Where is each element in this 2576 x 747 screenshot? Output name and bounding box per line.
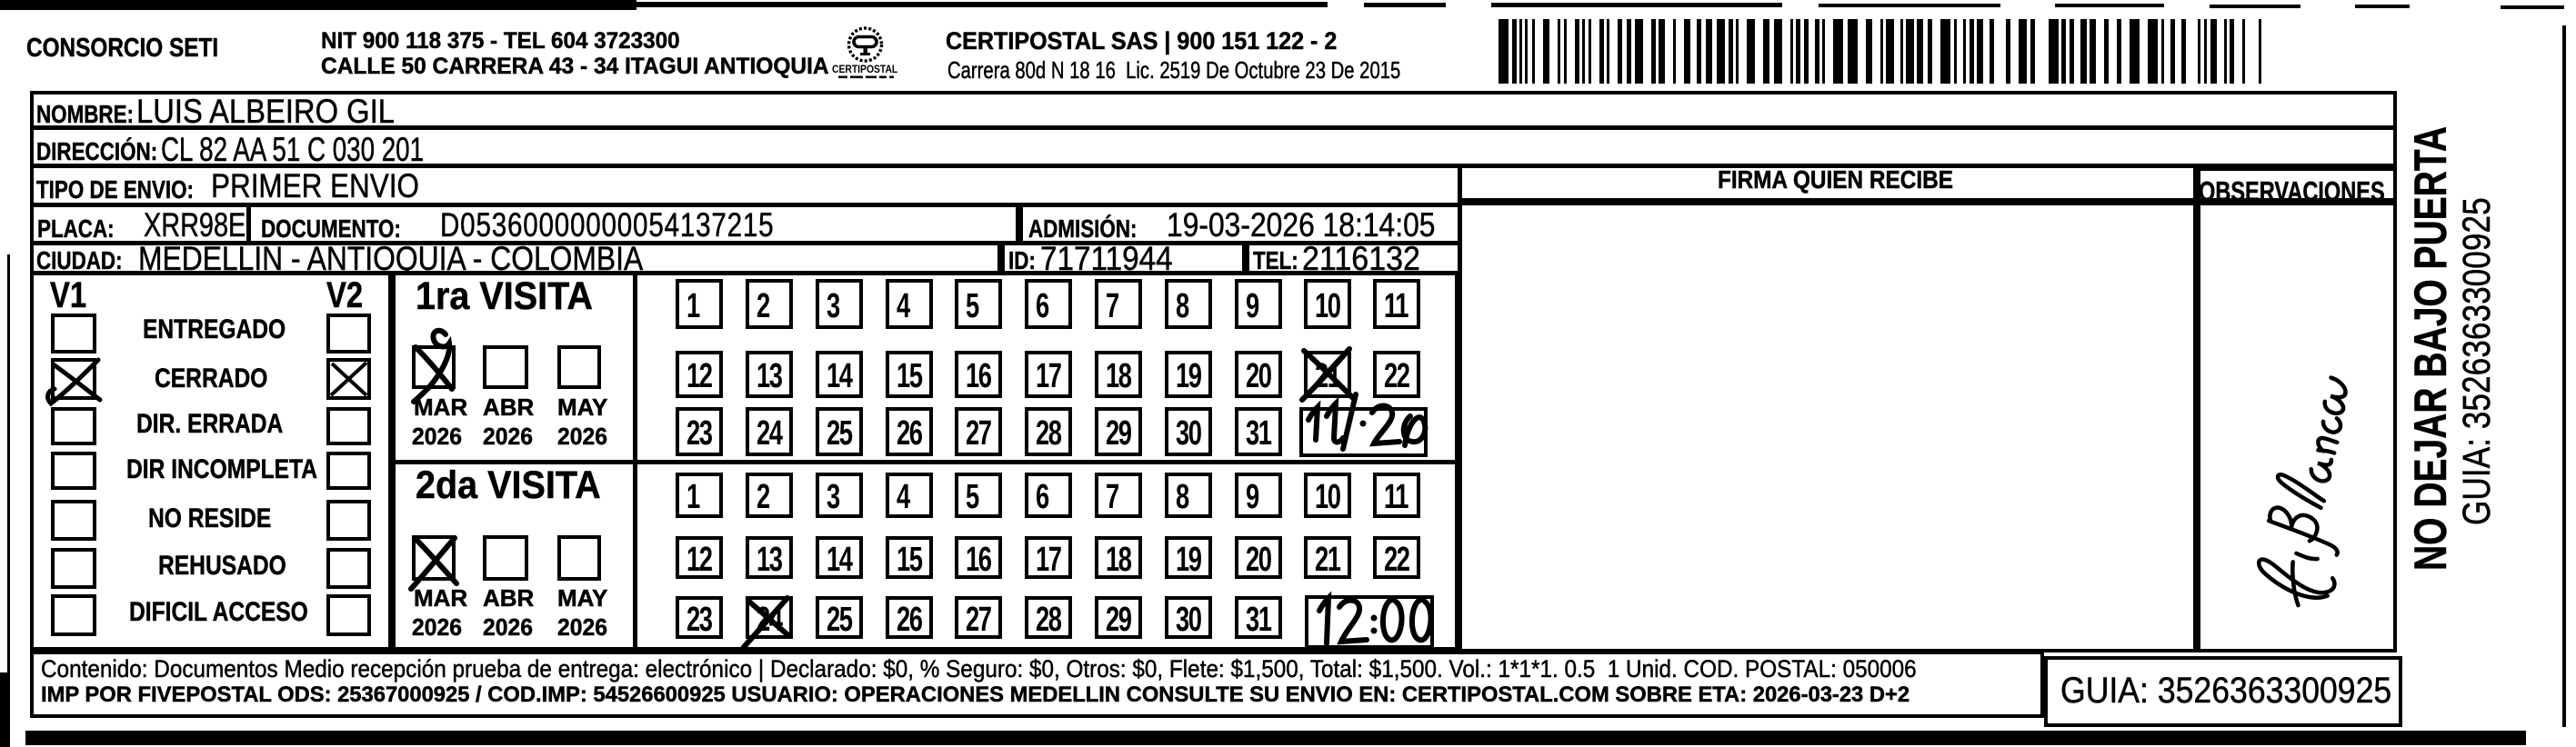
svg-text:CERTIPOSTAL: CERTIPOSTAL: [832, 65, 898, 76]
